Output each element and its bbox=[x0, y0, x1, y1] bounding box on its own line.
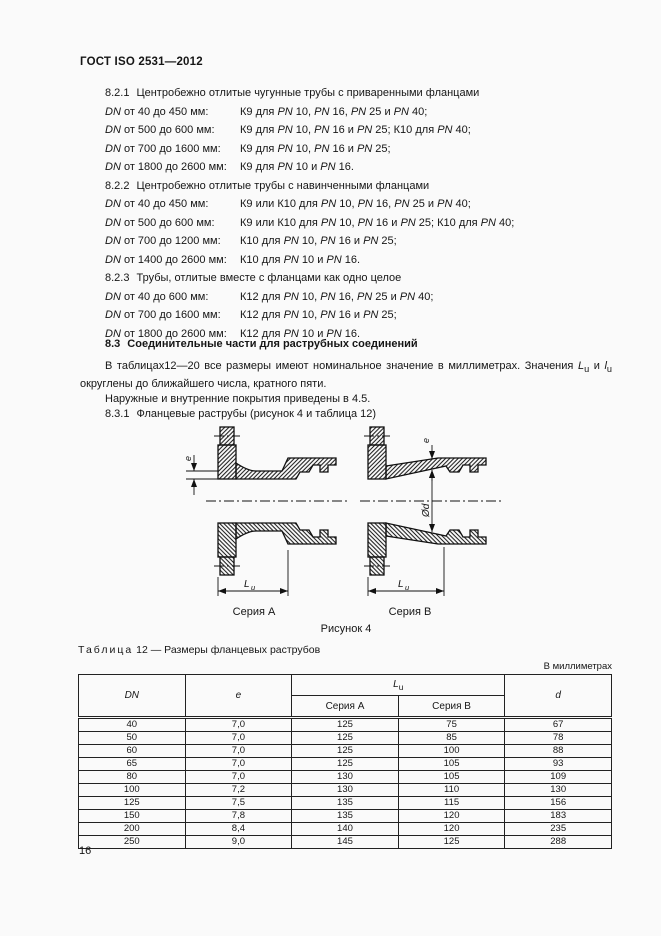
paragraph: Наружные и внутренние покрытия приведены… bbox=[105, 392, 612, 407]
table-cell: 183 bbox=[505, 810, 612, 823]
table-cell: 125 bbox=[398, 836, 505, 849]
table-cell: 88 bbox=[505, 745, 612, 758]
table-caption-rest: 12 — Размеры фланцевых раструбов bbox=[136, 644, 320, 656]
spec-row: DN от 700 до 1600 мм:К12 для PN 10, PN 1… bbox=[105, 306, 595, 325]
table-cell: 125 bbox=[79, 797, 186, 810]
page-number: 16 bbox=[79, 845, 91, 857]
section-8-3: 8.3Соединительные части для раструбных с… bbox=[80, 337, 612, 422]
class-spec: К9 для PN 10, PN 16, PN 25 и PN 40; bbox=[240, 103, 595, 122]
table-cell: 100 bbox=[398, 745, 505, 758]
spec-row: DN от 1400 до 2600 мм:К10 для PN 10 и PN… bbox=[105, 251, 595, 270]
dn-range: DN от 40 до 450 мм: bbox=[105, 195, 240, 214]
table-cell: 145 bbox=[292, 836, 399, 849]
dim-label-e: e bbox=[183, 456, 193, 461]
dim-label-e: e bbox=[421, 438, 431, 443]
table-cell: 135 bbox=[292, 810, 399, 823]
spec-row: DN от 500 до 600 мм:К9 для PN 10, PN 16 … bbox=[105, 121, 595, 140]
spec-row: DN от 40 до 450 мм:К9 или К10 для PN 10,… bbox=[105, 195, 595, 214]
table-cell: 105 bbox=[398, 771, 505, 784]
dim-label-lu: L bbox=[244, 579, 250, 590]
figure-series-b-section: e Ød L u bbox=[360, 427, 502, 596]
units-note: В миллиметрах bbox=[544, 661, 612, 672]
table-cell: 7,5 bbox=[185, 797, 292, 810]
series-b-label: Серия В bbox=[365, 606, 455, 618]
class-spec: К10 для PN 10 и PN 16. bbox=[240, 251, 595, 270]
table-caption-word: Таблица bbox=[78, 644, 133, 656]
spec-row: DN от 500 до 600 мм:К9 или К10 для PN 10… bbox=[105, 214, 595, 233]
table-cell: 288 bbox=[505, 836, 612, 849]
spec-row: DN от 40 до 600 мм:К12 для PN 10, PN 16,… bbox=[105, 288, 595, 307]
table-cell: 7,2 bbox=[185, 784, 292, 797]
spec-sections: 8.2.1Центробежно отлитые чугунные трубы … bbox=[105, 84, 595, 343]
table-cell: 78 bbox=[505, 732, 612, 745]
table-row: 1507,8135120183 bbox=[79, 810, 612, 823]
table-cell: 75 bbox=[398, 718, 505, 732]
table-cell: 130 bbox=[292, 771, 399, 784]
figure-4-drawing: e L u e Ød bbox=[170, 419, 510, 601]
table-cell: 85 bbox=[398, 732, 505, 745]
table-cell: 130 bbox=[292, 784, 399, 797]
table-row: 2008,4140120235 bbox=[79, 823, 612, 836]
section-number: 8.3.1 bbox=[105, 408, 129, 420]
dn-range: DN от 1400 до 2600 мм: bbox=[105, 251, 240, 270]
table-cell: 7,8 bbox=[185, 810, 292, 823]
table-row: 2509,0145125288 bbox=[79, 836, 612, 849]
class-spec: К12 для PN 10, PN 16 и PN 25; bbox=[240, 306, 595, 325]
dim-label-lu: L bbox=[398, 579, 404, 590]
col-header-lu: Lu bbox=[292, 675, 505, 696]
table-body: 407,01257567507,01258578607,012510088657… bbox=[79, 718, 612, 849]
section-number: 8.2.1 bbox=[105, 87, 129, 99]
spec-row: DN от 1800 до 2600 мм:К9 для PN 10 и PN … bbox=[105, 158, 595, 177]
spec-row: DN от 700 до 1200 мм:К10 для PN 10, PN 1… bbox=[105, 232, 595, 251]
class-spec: К12 для PN 10, PN 16, PN 25 и PN 40; bbox=[240, 288, 595, 307]
table-cell: 109 bbox=[505, 771, 612, 784]
series-a-label: Серия А bbox=[209, 606, 299, 618]
dn-range: DN от 40 до 600 мм: bbox=[105, 288, 240, 307]
col-header-series-b: Серия B bbox=[398, 696, 505, 718]
table-cell: 235 bbox=[505, 823, 612, 836]
dn-range: DN от 700 до 1200 мм: bbox=[105, 232, 240, 251]
table-cell: 156 bbox=[505, 797, 612, 810]
table-cell: 93 bbox=[505, 758, 612, 771]
table-header: DN e Lu d Серия A Серия B bbox=[79, 675, 612, 718]
table-cell: 7,0 bbox=[185, 745, 292, 758]
dn-range: DN от 1800 до 2600 мм: bbox=[105, 158, 240, 177]
col-header-d: d bbox=[505, 675, 612, 718]
table-cell: 125 bbox=[292, 732, 399, 745]
section-heading: 8.2.3Трубы, отлитые вместе с фланцами ка… bbox=[105, 269, 595, 288]
table-row: 1007,2130110130 bbox=[79, 784, 612, 797]
dn-range: DN от 700 до 1600 мм: bbox=[105, 140, 240, 159]
paragraph: В таблицах12—20 все размеры имеют номина… bbox=[80, 359, 612, 392]
col-header-dn: DN bbox=[79, 675, 186, 718]
table-cell: 200 bbox=[79, 823, 186, 836]
section-heading: 8.2.1Центробежно отлитые чугунные трубы … bbox=[105, 84, 595, 103]
section-heading: 8.3Соединительные части для раструбных с… bbox=[105, 337, 612, 351]
dim-label-d: Ød bbox=[421, 503, 432, 518]
table-cell: 120 bbox=[398, 823, 505, 836]
table-row: 407,01257567 bbox=[79, 718, 612, 732]
table-cell: 100 bbox=[79, 784, 186, 797]
table-cell: 105 bbox=[398, 758, 505, 771]
table-cell: 40 bbox=[79, 718, 186, 732]
section-number: 8.2.3 bbox=[105, 272, 129, 284]
table-cell: 120 bbox=[398, 810, 505, 823]
spec-row: DN от 40 до 450 мм:К9 для PN 10, PN 16, … bbox=[105, 103, 595, 122]
col-header-series-a: Серия A bbox=[292, 696, 399, 718]
table-row: 507,01258578 bbox=[79, 732, 612, 745]
table-cell: 140 bbox=[292, 823, 399, 836]
spec-row: DN от 700 до 1600 мм:К9 для PN 10, PN 16… bbox=[105, 140, 595, 159]
col-header-e: e bbox=[185, 675, 292, 718]
class-spec: К9 или К10 для PN 10, PN 16, PN 25 и PN … bbox=[240, 195, 595, 214]
table-cell: 150 bbox=[79, 810, 186, 823]
table-cell: 130 bbox=[505, 784, 612, 797]
table-cell: 50 bbox=[79, 732, 186, 745]
section-heading: 8.2.2Центробежно отлитые трубы с навинче… bbox=[105, 177, 595, 196]
section-title: Соединительные части для раструбных соед… bbox=[127, 338, 417, 350]
table-cell: 125 bbox=[292, 718, 399, 732]
table-cell: 7,0 bbox=[185, 732, 292, 745]
dn-range: DN от 40 до 450 мм: bbox=[105, 103, 240, 122]
table-cell: 7,0 bbox=[185, 758, 292, 771]
table-row: 607,012510088 bbox=[79, 745, 612, 758]
table-caption: Таблица12 — Размеры фланцевых раструбов bbox=[78, 644, 320, 656]
figure-caption: Рисунок 4 bbox=[301, 623, 391, 635]
table-cell: 7,0 bbox=[185, 718, 292, 732]
table-row: 807,0130105109 bbox=[79, 771, 612, 784]
table-cell: 250 bbox=[79, 836, 186, 849]
table-cell: 9,0 bbox=[185, 836, 292, 849]
table-cell: 80 bbox=[79, 771, 186, 784]
standard-designation: ГОСТ ISO 2531—2012 bbox=[80, 56, 203, 68]
table-12: DN e Lu d Серия A Серия B 407,0125756750… bbox=[78, 674, 612, 849]
table-cell: 60 bbox=[79, 745, 186, 758]
dn-range: DN от 700 до 1600 мм: bbox=[105, 306, 240, 325]
class-spec: К9 для PN 10 и PN 16. bbox=[240, 158, 595, 177]
section-number: 8.2.2 bbox=[105, 180, 129, 192]
class-spec: К9 для PN 10, PN 16 и PN 25; bbox=[240, 140, 595, 159]
figure-series-a-section: e L u bbox=[183, 427, 348, 596]
class-spec: К9 или К10 для PN 10, PN 16 и PN 25; К10… bbox=[240, 214, 595, 233]
dn-range: DN от 500 до 600 мм: bbox=[105, 214, 240, 233]
dn-range: DN от 500 до 600 мм: bbox=[105, 121, 240, 140]
class-spec: К9 для PN 10, PN 16 и PN 25; К10 для PN … bbox=[240, 121, 595, 140]
table-cell: 7,0 bbox=[185, 771, 292, 784]
table-cell: 8,4 bbox=[185, 823, 292, 836]
document-page: ГОСТ ISO 2531—2012 8.2.1Центробежно отли… bbox=[0, 0, 661, 936]
table-row: 657,012510593 bbox=[79, 758, 612, 771]
table-cell: 125 bbox=[292, 745, 399, 758]
class-spec: К10 для PN 10, PN 16 и PN 25; bbox=[240, 232, 595, 251]
table-cell: 67 bbox=[505, 718, 612, 732]
table-row: 1257,5135115156 bbox=[79, 797, 612, 810]
table-cell: 125 bbox=[292, 758, 399, 771]
table-cell: 110 bbox=[398, 784, 505, 797]
section-number: 8.3 bbox=[105, 338, 120, 350]
table-cell: 65 bbox=[79, 758, 186, 771]
table-cell: 115 bbox=[398, 797, 505, 810]
table-cell: 135 bbox=[292, 797, 399, 810]
